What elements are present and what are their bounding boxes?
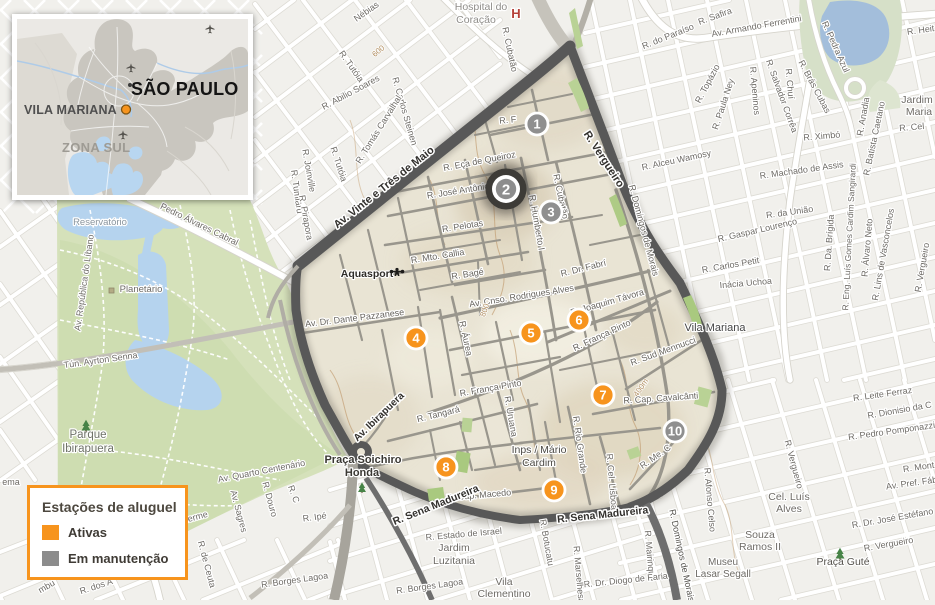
svg-text:Coração: Coração	[456, 14, 496, 26]
svg-text:ema: ema	[2, 477, 20, 487]
svg-text:H: H	[511, 6, 520, 21]
svg-text:Lasar Segall: Lasar Segall	[695, 569, 751, 580]
svg-text:5: 5	[527, 326, 534, 341]
svg-text:8: 8	[442, 460, 449, 475]
svg-text:Ramos II: Ramos II	[739, 541, 781, 553]
svg-text:Alves: Alves	[776, 503, 802, 515]
svg-text:6: 6	[575, 313, 582, 328]
svg-text:Cel. Luís: Cel. Luís	[768, 491, 809, 503]
svg-text:Inps / Mário: Inps / Mário	[512, 444, 567, 456]
svg-text:SÃO PAULO: SÃO PAULO	[131, 78, 238, 99]
svg-text:3: 3	[547, 205, 554, 220]
svg-text:VILA MARIANA: VILA MARIANA	[24, 103, 117, 117]
svg-text:10: 10	[668, 424, 682, 439]
svg-text:Museu: Museu	[708, 557, 738, 568]
svg-text:Ibirapuera: Ibirapuera	[62, 443, 114, 455]
svg-text:Parque: Parque	[69, 429, 106, 441]
svg-text:7: 7	[599, 388, 606, 403]
svg-text:1: 1	[533, 117, 540, 132]
svg-text:Maria: Maria	[906, 106, 932, 118]
svg-text:9: 9	[550, 483, 557, 498]
svg-text:Planetário: Planetário	[120, 284, 163, 295]
svg-text:Reservatório: Reservatório	[73, 217, 127, 228]
svg-text:Vila: Vila	[495, 576, 512, 588]
svg-text:Souza: Souza	[745, 529, 775, 541]
svg-text:Hospital do: Hospital do	[455, 1, 508, 13]
svg-text:Cardim: Cardim	[522, 457, 556, 469]
svg-text:R. F: R. F	[499, 114, 517, 125]
svg-text:Jardim: Jardim	[901, 94, 933, 106]
svg-text:Vila Mariana: Vila Mariana	[685, 322, 747, 334]
svg-text:Luzitania: Luzitania	[433, 555, 475, 567]
svg-text:Aquasport: Aquasport	[341, 268, 394, 280]
svg-text:Honda: Honda	[345, 467, 380, 479]
svg-text:Praça Soichiro: Praça Soichiro	[324, 454, 401, 466]
svg-text:Jardim: Jardim	[438, 542, 470, 554]
svg-text:ZONA SUL: ZONA SUL	[62, 140, 130, 155]
svg-text:2: 2	[502, 182, 510, 199]
svg-text:4: 4	[412, 331, 420, 346]
svg-text:Clementino: Clementino	[477, 588, 530, 600]
